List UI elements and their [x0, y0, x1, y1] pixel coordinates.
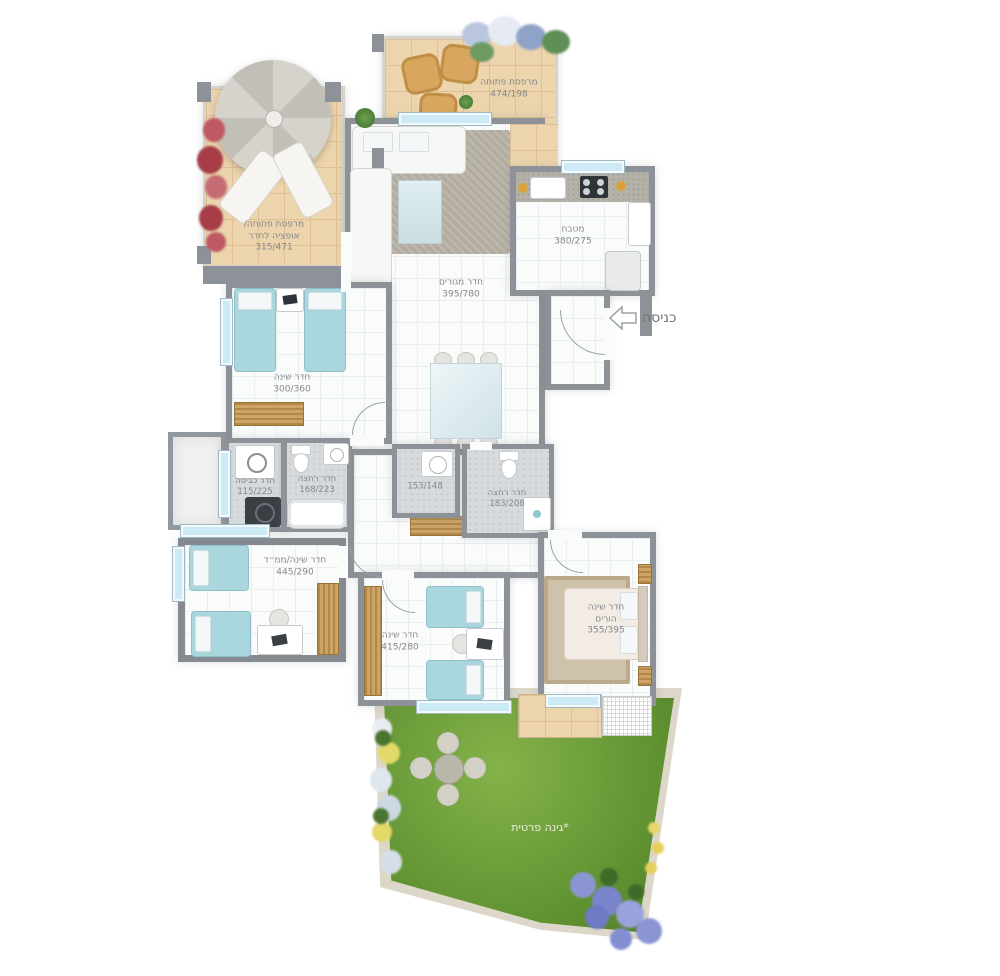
window [416, 700, 512, 714]
wall-pillar [197, 82, 211, 102]
bedroom-mamad: חדר שינה/ממ״ד 445/290 [178, 538, 346, 662]
room-dims: 395/780 [439, 289, 483, 301]
stove [580, 176, 608, 198]
room-name: *גינה פרטית [511, 821, 568, 835]
room-name: חדר רחצה [488, 488, 527, 499]
entrance-arrow-icon [608, 304, 638, 332]
coffee-table [398, 180, 442, 244]
burner [583, 188, 590, 195]
dryer-door [255, 503, 275, 523]
door-opening [350, 437, 384, 446]
window [545, 694, 601, 708]
basin [330, 448, 344, 462]
room-label: חדר כביסה 115/225 [235, 476, 275, 498]
door-opening [338, 546, 348, 578]
garden-chair [410, 757, 432, 779]
dryer [245, 497, 281, 527]
room-label: 153/148 [407, 481, 442, 492]
garden-chair [437, 784, 459, 806]
flowers-green [375, 730, 391, 746]
parasol-center [265, 110, 283, 128]
flowers-yellow [645, 862, 657, 874]
flowers-green [628, 884, 644, 900]
laptop [476, 638, 492, 650]
bathroom1: חדר רחצה 168/223 [282, 438, 352, 532]
flowers-green [470, 42, 494, 62]
flowers-red [199, 205, 223, 231]
bowl [518, 183, 528, 193]
room-name: מרפסת פתוחה [480, 77, 537, 89]
bowl [616, 181, 626, 191]
nightstand [638, 564, 652, 584]
bed [304, 288, 346, 372]
bathroom2: חדר רחצה 183/208 [462, 444, 554, 538]
flowers-red [203, 118, 225, 142]
window [398, 112, 492, 126]
flowers-yellow [372, 822, 392, 842]
bed [189, 545, 249, 591]
flowers-purple [610, 928, 632, 950]
wardrobe [364, 586, 382, 696]
desk [466, 628, 504, 660]
flowers-white [370, 768, 392, 792]
sink [323, 443, 349, 465]
wall-pillar [372, 148, 384, 168]
fridge [605, 251, 641, 291]
room-name: מרפסת פתוחה/ [244, 219, 304, 231]
room-label: חדר שינה/ממ״ד 445/290 [264, 555, 327, 578]
nightstand [638, 666, 652, 686]
window [180, 524, 270, 538]
bed-pillow [466, 591, 481, 623]
pergola-grid [602, 696, 652, 736]
plant [459, 95, 473, 109]
flowers-red [205, 175, 227, 199]
door-opening [548, 530, 582, 540]
room-name: חדר שינה [273, 372, 310, 384]
bed [234, 288, 276, 372]
flowers-green [373, 808, 389, 824]
flowers-green [600, 868, 618, 886]
flowers-red [206, 232, 226, 252]
wc: 153/148 [392, 444, 460, 518]
bathtub [287, 499, 347, 529]
wall-pillar [372, 34, 384, 52]
window [220, 298, 233, 366]
room-name: חדר שינה [587, 602, 624, 614]
room-label: חדר רחצה 183/208 [488, 488, 527, 510]
room-label: חדר רחצה 168/223 [298, 474, 337, 496]
garden-label: *גינה פרטית [511, 821, 568, 835]
flowers-purple [636, 918, 662, 944]
room-dims: 300/360 [273, 384, 310, 396]
flowers-purple [585, 905, 609, 929]
room-name: הורים [587, 614, 624, 626]
bed-pillow [466, 665, 481, 695]
desk [257, 625, 303, 655]
dining-table [430, 363, 502, 439]
washing-machine [235, 445, 275, 479]
plant [355, 108, 375, 128]
flowers-yellow [648, 822, 660, 834]
tv [282, 294, 297, 305]
wall-pillar [325, 82, 341, 102]
room-label: מרפסת פתוחה/ אופציה לחדר 315/471 [244, 219, 304, 254]
room-dims: 115/225 [235, 487, 275, 498]
flowers-blue-white [516, 24, 546, 50]
entrance-label: כניסה [642, 310, 676, 326]
shower-drain [533, 510, 541, 518]
room-dims: 474/198 [480, 89, 537, 101]
room-label: חדר שינה 415/280 [381, 630, 418, 653]
bed [426, 660, 484, 700]
room-dims: 445/290 [264, 567, 327, 579]
burner [583, 179, 590, 186]
garden-table [434, 754, 464, 784]
bed [426, 586, 484, 628]
wall-segment [203, 266, 348, 284]
room-name: חדר רחצה [298, 474, 337, 485]
sun-lounger [271, 140, 335, 220]
room-name: חדר מגורים [439, 277, 483, 289]
kitchen-cabinet [628, 202, 651, 246]
room-name: מטבח [554, 224, 591, 236]
bed-pillow [195, 616, 211, 652]
sofa-cushion [399, 132, 429, 152]
shower [523, 497, 551, 531]
bed-pillow [238, 292, 272, 310]
room-label: חדר שינה הורים 355/395 [587, 602, 624, 637]
wicker-chair [399, 51, 444, 96]
room-dims: 415/280 [381, 642, 418, 654]
toilet-bowl [501, 459, 517, 479]
flowers-purple [570, 872, 596, 898]
window [218, 450, 231, 518]
kitchen: מטבח 380/275 [510, 166, 655, 296]
wardrobe [317, 583, 339, 655]
room-name: חדר שינה/ממ״ד [264, 555, 327, 567]
room-dims: 355/395 [587, 626, 624, 638]
room-label: מרפסת פתוחה 474/198 [480, 77, 537, 100]
room-dims: 153/148 [407, 481, 442, 492]
room-label: חדר מגורים 395/780 [439, 277, 483, 300]
flowers-yellow [652, 842, 664, 854]
toilet-bowl [293, 453, 309, 473]
flowers-red [197, 146, 223, 174]
balcony-floor-patch [510, 124, 558, 168]
burner [597, 179, 604, 186]
dresser [234, 402, 304, 426]
window [561, 160, 625, 174]
door-opening [382, 570, 414, 580]
flowers-green [542, 30, 570, 54]
room-dims: 315/471 [244, 243, 304, 255]
kitchen-sink [530, 177, 566, 199]
garden-chair [464, 757, 486, 779]
basin [429, 456, 447, 474]
flowers-white [380, 850, 402, 874]
washer-door [247, 453, 267, 473]
room-label: מטבח 380/275 [554, 224, 591, 247]
room-dims: 168/223 [298, 485, 337, 496]
bedroom-kids2: חדר שינה 415/280 [358, 572, 510, 706]
laptop [271, 634, 288, 646]
floor-plan: מרפסת פתוחה 474/198 מרפסת פתוחה/ אופציה … [0, 0, 1000, 976]
room-dims: 380/275 [554, 236, 591, 248]
bed [191, 611, 251, 657]
garden-chair [437, 732, 459, 754]
room-label: חדר שינה 300/360 [273, 372, 310, 395]
bed-pillow [308, 292, 342, 310]
room-name: אופציה לחדר [244, 231, 304, 243]
room-name: חדר כביסה [235, 476, 275, 487]
burner [597, 188, 604, 195]
headboard [638, 586, 648, 662]
room-dims: 183/208 [488, 499, 527, 510]
balcony-door-opening [341, 232, 351, 292]
nightstand [276, 288, 304, 312]
window [172, 546, 185, 602]
bed-pillow [193, 550, 209, 586]
door-opening [470, 442, 492, 450]
laundry-room: חדר כביסה 115/225 [224, 438, 286, 532]
vanity [421, 451, 453, 477]
room-name: חדר שינה [381, 630, 418, 642]
